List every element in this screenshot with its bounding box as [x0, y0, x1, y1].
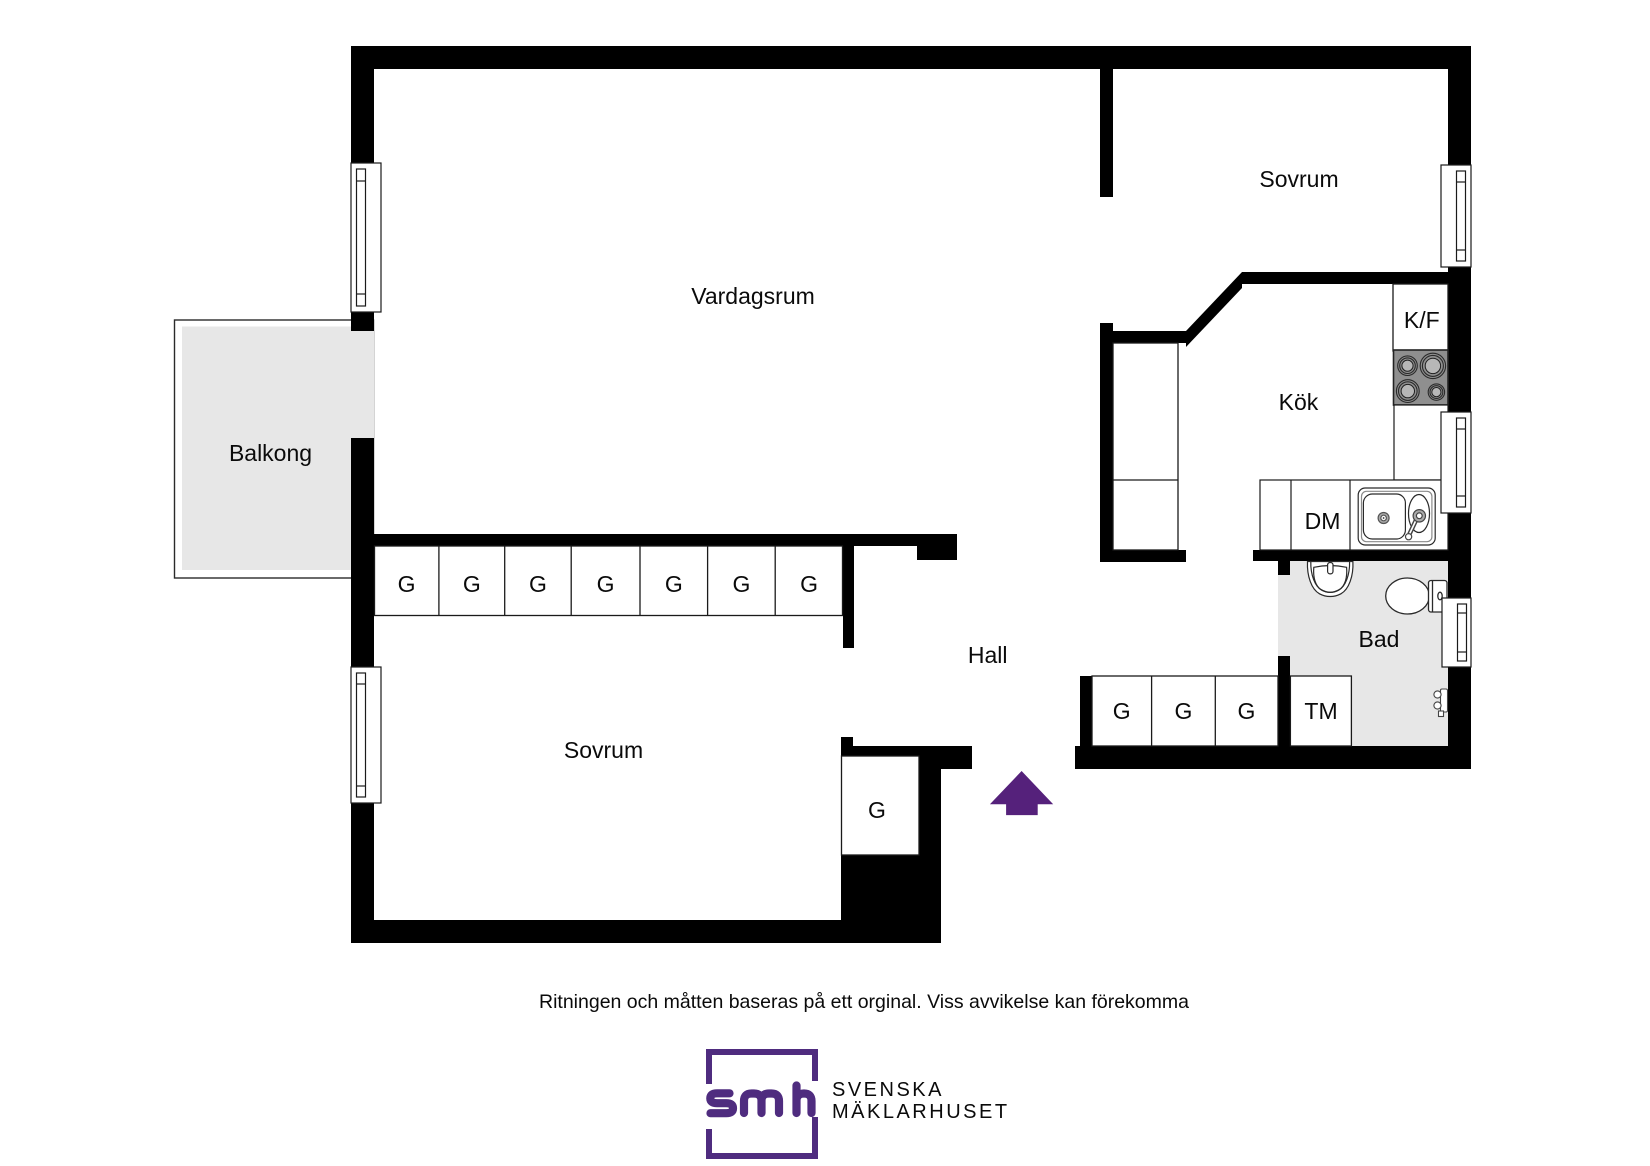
- svg-text:G: G: [398, 571, 416, 597]
- svg-text:G: G: [868, 797, 886, 823]
- svg-text:G: G: [1174, 698, 1192, 724]
- svg-text:G: G: [800, 571, 818, 597]
- svg-text:G: G: [463, 571, 481, 597]
- svg-text:G: G: [665, 571, 683, 597]
- svg-text:Bad: Bad: [1359, 626, 1400, 652]
- svg-text:Balkong: Balkong: [229, 440, 312, 466]
- svg-text:G: G: [1113, 698, 1131, 724]
- svg-text:MÄKLARHUSET: MÄKLARHUSET: [832, 1101, 1010, 1123]
- svg-text:Vardagsrum: Vardagsrum: [691, 283, 815, 309]
- svg-text:SVENSKA: SVENSKA: [832, 1079, 944, 1101]
- svg-text:Ritningen och måtten baseras p: Ritningen och måtten baseras på ett orgi…: [539, 991, 1189, 1013]
- svg-text:Sovrum: Sovrum: [564, 737, 643, 763]
- svg-text:G: G: [597, 571, 615, 597]
- svg-text:TM: TM: [1304, 698, 1337, 724]
- svg-text:K/F: K/F: [1404, 307, 1440, 333]
- svg-text:DM: DM: [1305, 508, 1341, 534]
- svg-text:G: G: [529, 571, 547, 597]
- svg-text:Hall: Hall: [968, 642, 1008, 668]
- svg-text:G: G: [1238, 698, 1256, 724]
- svg-text:Sovrum: Sovrum: [1259, 166, 1338, 192]
- svg-text:G: G: [732, 571, 750, 597]
- svg-text:Kök: Kök: [1279, 389, 1319, 415]
